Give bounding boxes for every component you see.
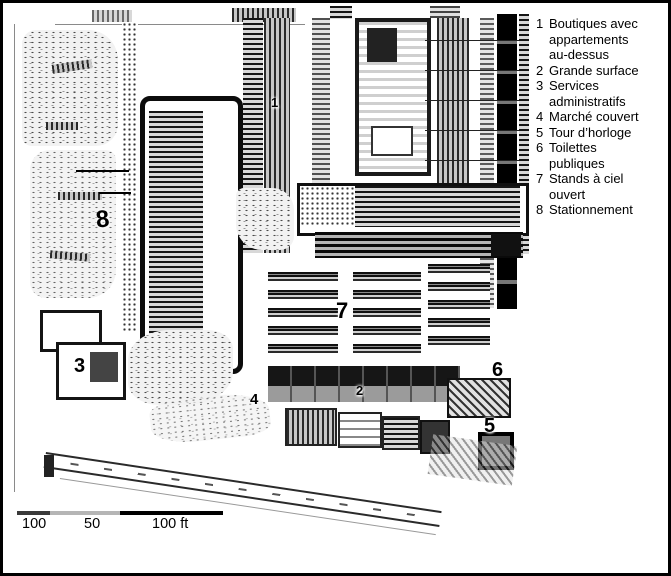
courtyard-building	[355, 18, 431, 176]
building-fragment-top-1	[92, 10, 132, 22]
admin-building-core	[90, 352, 118, 382]
parking-row-3	[58, 192, 102, 200]
tie-line-5	[425, 160, 519, 161]
legend-item-4: 4 Marché couvert	[536, 109, 668, 125]
legend-item-5: 5 Tour d’horloge	[536, 125, 668, 141]
scale-label-100: 100	[22, 516, 46, 532]
shop-units-hatch	[149, 111, 203, 351]
legend-text: appartements	[549, 32, 668, 48]
market-hall-band	[297, 183, 529, 236]
stall-rows-middle	[353, 272, 421, 360]
leader-line-2	[99, 192, 131, 194]
legend-number: 4	[536, 109, 543, 125]
legend-item-7: 7 Stands à ciel ouvert	[536, 171, 668, 202]
legend-text: ouvert	[549, 187, 668, 203]
dotted-path-strip	[122, 22, 138, 332]
bottom-building-3	[382, 416, 420, 450]
plan-label-6: 6	[492, 360, 503, 380]
diagonal-road	[44, 452, 442, 527]
leader-line-1	[76, 170, 129, 172]
scale-bar-segment-3	[120, 511, 223, 515]
scale-bar-segment-1	[17, 511, 50, 515]
toilets-block	[447, 378, 511, 418]
right-edge-dark-band	[497, 14, 517, 309]
legend-number: 5	[536, 125, 543, 141]
road-post	[44, 455, 54, 477]
market-hall-hatch	[355, 186, 520, 227]
tie-line-4	[425, 130, 519, 131]
legend-text: Services	[549, 78, 668, 94]
legend-text: publiques	[549, 156, 668, 172]
large-store-block	[268, 366, 460, 402]
legend-item-2: 2 Grande surface	[536, 63, 668, 79]
market-corner-block	[491, 234, 521, 256]
shrub-texture-a	[128, 330, 233, 405]
building-fragment-top-4	[430, 6, 460, 18]
plan-left-boundary-line	[14, 24, 15, 492]
market-lower-band	[315, 232, 523, 258]
legend-text: au-dessus	[549, 47, 668, 63]
legend-text: Boutiques avec	[549, 16, 668, 32]
stall-rows-right	[428, 264, 490, 346]
plan-label-1: 1	[271, 96, 278, 109]
legend-text: Tour d’horloge	[549, 125, 668, 141]
tie-line-2	[425, 70, 519, 71]
legend-item-6: 6 Toilettes publiques	[536, 140, 668, 171]
plan-label-4: 4	[250, 392, 258, 407]
legend-number: 3	[536, 78, 543, 94]
courtyard-building-dark-block	[367, 28, 397, 62]
boutique-strip-c	[312, 18, 330, 183]
legend-text: Grande surface	[549, 63, 668, 79]
plan-label-3: 3	[74, 356, 85, 376]
scale-bar-segment-2	[50, 511, 120, 515]
tree-cluster-centre	[236, 188, 294, 250]
plan-label-2: 2	[356, 384, 363, 397]
legend-item-8: 8 Stationnement	[536, 202, 668, 218]
legend-item-1: 1 Boutiques avec appartements au-dessus	[536, 16, 668, 63]
market-hall-stipple	[300, 186, 355, 227]
legend: 1 Boutiques avec appartements au-dessus …	[536, 16, 668, 218]
legend-number: 1	[536, 16, 543, 32]
legend-number: 7	[536, 171, 543, 187]
legend-number: 8	[536, 202, 543, 218]
scale-label-100ft: 100 ft	[152, 516, 188, 532]
legend-number: 6	[536, 140, 543, 156]
legend-text: administratifs	[549, 94, 668, 110]
courtyard-open-space	[371, 126, 413, 156]
bottom-building-1	[285, 408, 337, 446]
tie-line-1	[425, 40, 519, 41]
plan-label-8: 8	[95, 207, 111, 232]
scale-bar	[17, 511, 223, 515]
legend-text: Stands à ciel	[549, 171, 668, 187]
legend-text: Stationnement	[549, 202, 668, 218]
plan-label-5: 5	[484, 416, 495, 436]
bottom-building-2	[338, 412, 382, 448]
legend-number: 2	[536, 63, 543, 79]
scale-label-50: 50	[84, 516, 100, 532]
tie-line-3	[425, 100, 519, 101]
legend-text: Marché couvert	[549, 109, 668, 125]
legend-item-3: 3 Services administratifs	[536, 78, 668, 109]
legend-text: Toilettes	[549, 140, 668, 156]
large-store-bays	[268, 366, 460, 402]
parking-row-2	[46, 122, 78, 130]
plan-label-7: 7	[336, 300, 348, 322]
building-fragment-top-3	[330, 6, 352, 19]
stall-rows-left	[268, 272, 338, 360]
